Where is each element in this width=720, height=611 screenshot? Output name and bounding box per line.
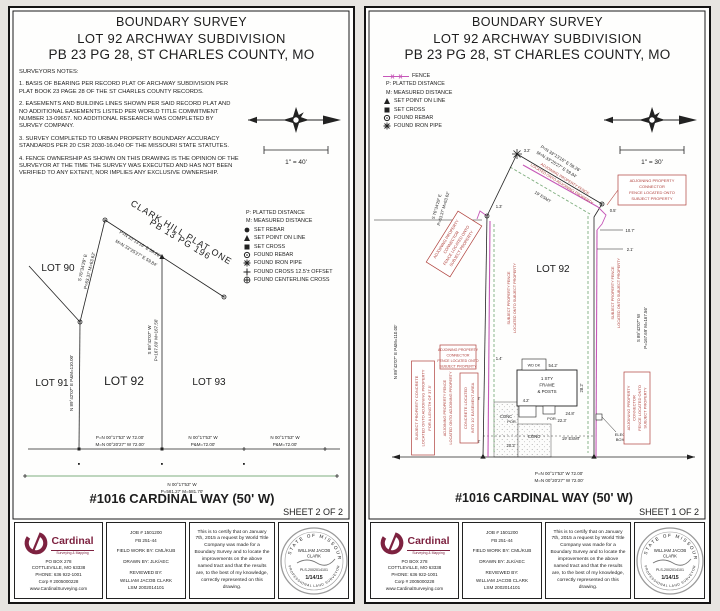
field-work-by: FIELD WORK BY: CML/KUB — [473, 547, 532, 555]
frontage-lot92-platted: P=N 00°17'53" W 72.00' — [96, 435, 144, 440]
frontage-platted: P=N 00°17'53" W 72.00' — [535, 471, 583, 476]
svg-text:FENCE LOCATED ONTO: FENCE LOCATED ONTO — [629, 190, 675, 195]
certification-text: This is to certify that on January 7th, … — [550, 530, 626, 592]
title-block: Cardinal Surveying & Mapping PO BOX 278 … — [14, 522, 349, 599]
frontage-lot93-dist: P&M=72.00' — [191, 442, 216, 447]
seal-cell: STATE OF MISSOURI PROFESSIONAL LAND SURV… — [634, 522, 705, 599]
north-arrow-icon: 1" = 30' — [600, 104, 700, 170]
bearing-west-line: N 89°42'07" E P&M=110.00' — [393, 325, 398, 380]
field-book: FB 251-44 — [491, 537, 512, 545]
svg-text:SUBJECT PROPERTY FENCE: SUBJECT PROPERTY FENCE — [611, 266, 615, 319]
field-book: FB 251-44 — [135, 537, 156, 545]
found-rebar-icon — [243, 251, 251, 259]
svg-text:28.2': 28.2' — [579, 383, 584, 392]
lot-91-label: LOT 91 — [35, 378, 69, 389]
certification-cell: This is to certify that on January 7th, … — [545, 522, 631, 599]
legend-item: SET POINT ON LINE — [383, 97, 513, 105]
svg-text:SUBJECT PROPERTY: SUBJECT PROPERTY — [439, 365, 477, 369]
drawn-by: DRAWN BY: JLK/AEC — [479, 558, 525, 566]
annotation-adj-connector-small: ADJOINING PROPERTY CONNECTOR FENCE LOCAT… — [437, 345, 478, 369]
reviewed-by: REVIEWED BY: — [130, 569, 163, 577]
svg-text:CONNECTOR: CONNECTOR — [446, 354, 469, 358]
seal-signature — [297, 559, 335, 565]
annotation-adj-connector-left: ADJOINING PROPERTY CONNECTOR FENCE LOCAT… — [426, 211, 482, 277]
page-title-line3: PB 23 PG 28, ST CHARLES COUNTY, MO — [366, 47, 709, 64]
frontage-lot94-bearing: N 00°17'53" W — [270, 435, 300, 440]
legend-item: M: MEASURED DISTANCE — [243, 217, 351, 225]
legend-item: FOUND REBAR — [383, 114, 513, 122]
seal-signature — [653, 559, 691, 565]
license-number: LSM 2002014101 — [128, 584, 164, 592]
job-info-cell: JOB # 1501200 FB 251-44 FIELD WORK BY: C… — [462, 522, 542, 599]
survey-sheet-2: CLARK HILL PLAT ONE PB 13 PG 196 P=N 33°… — [8, 6, 355, 604]
svg-text:FENCE LOCATED ONTO: FENCE LOCATED ONTO — [637, 385, 642, 431]
house-frame: FRAME — [539, 383, 554, 388]
sheet-number: SHEET 1 OF 2 — [639, 507, 699, 517]
legend-item: SET POINT ON LINE — [243, 234, 351, 242]
legend-item: M: MEASURED DISTANCE — [383, 89, 513, 97]
found-centerline-cross-icon — [243, 276, 251, 284]
fence-line-icon — [383, 73, 409, 80]
frontage-measured: M=N 00°20'27" W 72.00' — [534, 478, 583, 483]
certification-text: This is to certify that on January 7th, … — [194, 530, 270, 592]
sheet-number: SHEET 2 OF 2 — [283, 507, 343, 517]
porch-label-2: POR. — [547, 416, 557, 421]
reviewer-name: WILLIAM JACOB CLARK — [476, 577, 528, 585]
page-title: BOUNDARY SURVEY LOT 92 ARCHWAY SUBDIVISI… — [10, 15, 353, 64]
frontage-lot93-bearing: N 00°17'53" W — [188, 435, 218, 440]
legend-item: FENCE — [383, 72, 513, 80]
svg-text:SUBJECT PROPERTY CONCRETE: SUBJECT PROPERTY CONCRETE — [414, 375, 419, 440]
company-name: Cardinal — [407, 535, 449, 547]
svg-text:ADJOINING PROPERTY: ADJOINING PROPERTY — [438, 348, 479, 352]
annotation-adj-connector-right: ADJOINING PROPERTY CONNECTOR FENCE LOCAT… — [624, 372, 650, 444]
drawn-by: DRAWN BY: JLK/AEC — [123, 558, 169, 566]
set-point-icon — [243, 234, 251, 242]
legend-item: P: PLATTED DISTANCE — [383, 80, 513, 88]
lot-92-label: LOT 92 — [104, 374, 144, 388]
annotation-subj-concrete: SUBJECT PROPERTY CONCRETE LOCATED ONTO A… — [412, 361, 435, 455]
frontage-lot94-dist: P&M=72.00' — [273, 442, 298, 447]
job-number: JOB # 1501200 — [130, 529, 162, 537]
bearing-east-line: S 89°42'07" W — [147, 325, 152, 355]
svg-text:FOR A LENGTH OF 37.5': FOR A LENGTH OF 37.5' — [427, 385, 432, 431]
svg-text:SUBJECT PROPERTY: SUBJECT PROPERTY — [631, 196, 673, 201]
company-tagline: Surveying & Mapping — [51, 550, 93, 555]
seal-name1: WILLIAM JACOB — [653, 548, 686, 553]
scale-label: 1" = 40' — [285, 159, 307, 166]
lot-93-label: LOT 93 — [192, 377, 226, 388]
house-story: 1 STY — [541, 376, 553, 381]
page-title-line2: LOT 92 ARCHWAY SUBDIVISION — [10, 31, 353, 47]
legend-item: FOUND IRON PIPE — [383, 122, 513, 130]
title-block: Cardinal Surveying & Mapping PO BOX 278 … — [370, 522, 705, 599]
legend-item: P: PLATTED DISTANCE — [243, 209, 351, 217]
company-address: PO BOX 278 COTTLEVILLE, MO 63338 PHONE: … — [30, 559, 87, 593]
bearing-west-line: N 89°42'07" E P&M=110.00' — [69, 355, 74, 411]
page-title-line3: PB 23 PG 28, ST CHARLES COUNTY, MO — [10, 47, 353, 64]
seal-name1: WILLIAM JACOB — [297, 548, 330, 553]
svg-text:3.2': 3.2' — [524, 148, 531, 153]
svg-text:SUBJECT PROPERTY FENCE: SUBJECT PROPERTY FENCE — [507, 271, 511, 324]
map-legend: P: PLATTED DISTANCE M: MEASURED DISTANCE… — [243, 209, 351, 284]
cardinal-logo-icon — [379, 529, 405, 557]
svg-text:CONNECTOR: CONNECTOR — [632, 395, 637, 421]
concrete-label-1: CONC — [528, 434, 540, 439]
bearing-east-dist: P=167.69' M=167.56' — [643, 307, 648, 349]
legend-measured: M: MEASURED DISTANCE — [246, 217, 312, 225]
license-number: LSM 2002014101 — [484, 584, 520, 592]
company-cell: Cardinal Surveying & Mapping PO BOX 278 … — [370, 522, 459, 599]
notes-heading: SURVEYORS NOTES: — [19, 69, 249, 76]
easement-label-diag: 19' ESMT — [534, 190, 553, 204]
seal-name2: CLARK — [307, 553, 321, 558]
annotation-concrete-easement: CONCRETE LOCATED INTO 10' EASEMENT AREA — [460, 373, 478, 443]
lot-92-label: LOT 92 — [536, 264, 570, 275]
svg-text:4.2': 4.2' — [523, 398, 530, 403]
surveyor-notes: SURVEYORS NOTES: 1. BASIS OF BEARING PER… — [19, 69, 249, 183]
legend-item: FOUND CROSS 12.5'± OFFSET — [243, 268, 351, 276]
svg-text:2.1': 2.1' — [627, 247, 634, 252]
reviewed-by: REVIEWED BY: — [486, 569, 519, 577]
map-legend: FENCE P: PLATTED DISTANCE M: MEASURED DI… — [383, 72, 513, 131]
svg-text:LOCATED ONTO SUBJECT PROPERTY: LOCATED ONTO SUBJECT PROPERTY — [513, 263, 517, 333]
set-cross-icon — [243, 243, 251, 251]
street-name-label: #1016 CARDINAL WAY (50' W) — [90, 491, 275, 506]
legend-item: SET CROSS — [243, 243, 351, 251]
bearing-east-dist: P=167.69' M=167.56' — [154, 319, 159, 362]
svg-text:INTO 10' EASEMENT AREA: INTO 10' EASEMENT AREA — [470, 382, 475, 433]
annotation-adj-connector-tr: ADJOINING PROPERTY — [630, 178, 675, 183]
svg-text:CONNECTOR: CONNECTOR — [639, 184, 665, 189]
svg-text:BOX: BOX — [616, 437, 625, 442]
seal-date: 1/14/15 — [305, 575, 322, 581]
page-title-line1: BOUNDARY SURVEY — [10, 15, 353, 31]
bearing-east-line: S 89°42'07" W — [636, 313, 641, 342]
company-cell: Cardinal Surveying & Mapping PO BOX 278 … — [14, 522, 103, 599]
centerline-bearing: N 00°17'53" W — [167, 482, 197, 487]
scale-label: 1" = 30' — [641, 159, 663, 166]
found-iron-pipe-icon — [243, 259, 251, 267]
legend-platted: P: PLATTED DISTANCE — [246, 209, 305, 217]
seal-name2: CLARK — [663, 553, 677, 558]
surveyor-seal-icon: STATE OF MISSOURI PROFESSIONAL LAND SURV… — [279, 525, 349, 597]
svg-text:ADJOINING PROPERTY: ADJOINING PROPERTY — [626, 385, 631, 430]
lot-90-label: LOT 90 — [41, 263, 75, 274]
annotation-subj-fence-west: SUBJECT PROPERTY FENCE LOCATED ONTO SUBJ… — [507, 263, 517, 333]
house-footprint — [517, 230, 623, 432]
seal-license: PLS-2002014101 — [656, 568, 684, 572]
company-tagline: Surveying & Mapping — [407, 550, 449, 555]
company-address: PO BOX 278 COTTLEVILLE, MO 63338 PHONE: … — [386, 559, 443, 593]
legend-item: SET REBAR — [243, 226, 351, 234]
svg-text:1.4': 1.4' — [496, 356, 503, 361]
north-arrow-icon: 1" = 40' — [244, 104, 344, 170]
svg-text:20.2': 20.2' — [507, 443, 516, 448]
street-name-label: #1016 CARDINAL WAY (50' W) — [455, 491, 633, 505]
wood-deck-label: WD DK — [528, 364, 541, 368]
svg-text:FENCE LOCATED ONTO: FENCE LOCATED ONTO — [437, 359, 478, 363]
svg-text:SUBJECT PROPERTY: SUBJECT PROPERTY — [643, 387, 648, 429]
svg-text:ADJOINING PROPERTY FENCE: ADJOINING PROPERTY FENCE — [443, 379, 447, 436]
job-info-cell: JOB # 1501200 FB 251-44 FIELD WORK BY: C… — [106, 522, 186, 599]
svg-text:24.8': 24.8' — [566, 411, 575, 416]
svg-text:54.2': 54.2' — [549, 363, 558, 368]
svg-text:10.7': 10.7' — [626, 228, 635, 233]
street-arrow-right — [687, 455, 695, 460]
svg-text:LOCATED ONTO SUBJECT PROPERTY: LOCATED ONTO SUBJECT PROPERTY — [617, 258, 621, 328]
svg-text:22.3': 22.3' — [558, 418, 567, 423]
set-point-icon — [383, 97, 391, 105]
legend-item: SET CROSS — [383, 106, 513, 114]
seal-license: PLS-2002014101 — [300, 568, 328, 572]
seal-date: 1/14/15 — [661, 575, 678, 581]
seal-cell: STATE OF MISSOURI PROFESSIONAL LAND SURV… — [278, 522, 349, 599]
survey-sheet-1: P=N 33°13'16" E 59.26' M=N 33°25'27" E 5… — [364, 6, 711, 604]
company-name: Cardinal — [51, 535, 93, 547]
found-iron-pipe-icon — [383, 122, 391, 130]
easement-label-bottom: 19' ESMT — [562, 436, 581, 441]
page-title-line1: BOUNDARY SURVEY — [366, 15, 709, 31]
svg-text:1.3': 1.3' — [496, 204, 503, 209]
note-4: 4. FENCE OWNERSHIP AS SHOWN ON THIS DRAW… — [19, 156, 249, 178]
note-1: 1. BASIS OF BEARING PER RECORD PLAT OF A… — [19, 81, 249, 96]
field-work-by: FIELD WORK BY: CML/KUB — [117, 547, 176, 555]
frontage-lot92-measured: M=N 00°20'27" W 72.00' — [95, 442, 144, 447]
page-title: BOUNDARY SURVEY LOT 92 ARCHWAY SUBDIVISI… — [366, 15, 709, 64]
svg-text:0.5': 0.5' — [610, 208, 617, 213]
job-number: JOB # 1501200 — [486, 529, 518, 537]
page-title-line2: LOT 92 ARCHWAY SUBDIVISION — [366, 31, 709, 47]
legend-item: FOUND CENTERLINE CROSS — [243, 276, 351, 284]
found-rebar-icon — [383, 114, 391, 122]
svg-text:CONCRETE LOCATED: CONCRETE LOCATED — [463, 387, 468, 429]
svg-text:LOCATED ONTO ADJOINING PROPERT: LOCATED ONTO ADJOINING PROPERTY — [449, 371, 453, 444]
note-3: 3. SURVEY COMPLETED TO URBAN PROPERTY BO… — [19, 136, 249, 151]
found-cross-icon — [243, 268, 251, 276]
street-arrow-left — [392, 455, 400, 460]
note-2: 2. EASEMENTS AND BUILDING LINES SHOWN PE… — [19, 101, 249, 131]
certification-cell: This is to certify that on January 7th, … — [189, 522, 275, 599]
house-posts: & POSTS — [537, 389, 556, 394]
annotation-adj-fence-west: ADJOINING PROPERTY FENCE LOCATED ONTO AD… — [443, 371, 453, 444]
legend-item: FOUND REBAR — [243, 251, 351, 259]
reviewer-name: WILLIAM JACOB CLARK — [120, 577, 172, 585]
cardinal-logo-icon — [23, 529, 49, 557]
concrete-label-2: CONC — [500, 414, 512, 419]
surveyor-seal-icon: STATE OF MISSOURI PROFESSIONAL LAND SURV… — [635, 525, 705, 597]
svg-text:LOCATED ONTO ADJOINING PROPERT: LOCATED ONTO ADJOINING PROPERTY — [421, 369, 426, 446]
annotation-subj-fence-east: SUBJECT PROPERTY FENCE LOCATED ONTO SUBJ… — [611, 258, 621, 328]
legend-item: FOUND IRON PIPE — [243, 259, 351, 267]
set-cross-icon — [383, 106, 391, 114]
set-rebar-icon — [243, 226, 251, 234]
porch-label-1: POR. — [507, 419, 517, 424]
